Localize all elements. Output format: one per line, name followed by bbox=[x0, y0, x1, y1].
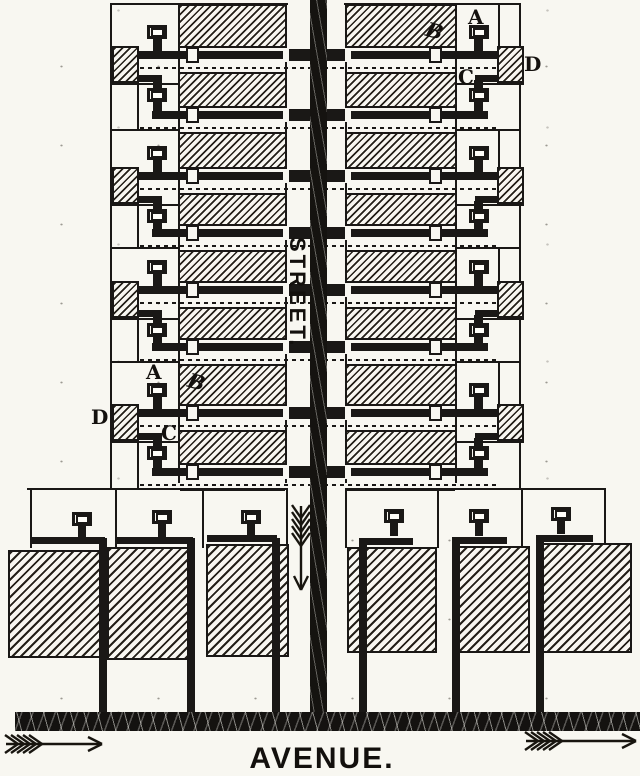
valve-box bbox=[147, 88, 167, 102]
lot-divider-line bbox=[137, 204, 139, 247]
callout-label-d: D bbox=[524, 54, 541, 74]
callout-label-d: D bbox=[91, 407, 108, 427]
valve-box-lid bbox=[151, 263, 164, 272]
wall-sleeve bbox=[186, 47, 199, 63]
curb-stop-riser bbox=[247, 523, 255, 537]
lot-divider-line bbox=[112, 318, 178, 320]
curb-stop-riser bbox=[78, 525, 86, 539]
curb-stop-riser bbox=[153, 274, 162, 287]
valve-box bbox=[147, 25, 167, 39]
valve-box bbox=[147, 209, 167, 223]
curb-stop-riser bbox=[153, 102, 162, 111]
valve-box-lid bbox=[151, 28, 164, 37]
street-wall-gap bbox=[345, 48, 351, 62]
curb-stop-riser bbox=[153, 460, 162, 468]
curb-stop-riser bbox=[475, 522, 483, 536]
valve-box-lid bbox=[473, 512, 486, 521]
avenue-building bbox=[537, 543, 632, 653]
band-top-line bbox=[344, 3, 521, 5]
wall-sleeve bbox=[429, 107, 442, 123]
street-wall-gap bbox=[345, 108, 351, 122]
lot-divider-line bbox=[498, 129, 500, 167]
curb-stop-riser bbox=[474, 39, 483, 52]
junction-block bbox=[112, 167, 139, 204]
wall-sleeve bbox=[429, 282, 442, 298]
valve-box-lid bbox=[151, 91, 164, 100]
wall-sleeve bbox=[186, 405, 199, 421]
curb-stop-riser bbox=[474, 337, 483, 343]
wall-sleeve bbox=[429, 168, 442, 184]
service-header-pipe bbox=[452, 537, 507, 544]
service-header-pipe bbox=[207, 535, 277, 542]
valve-box bbox=[469, 323, 489, 337]
valve-box-lid bbox=[473, 149, 486, 158]
valve-box bbox=[147, 383, 167, 397]
valve-box bbox=[469, 88, 489, 102]
valve-box-lid bbox=[473, 212, 486, 221]
street-wall-gap bbox=[283, 406, 289, 420]
street-wall-gap bbox=[345, 465, 351, 479]
avenue-service-pipe bbox=[536, 538, 544, 716]
valve-box bbox=[241, 510, 261, 524]
avenue-lot-divider-line bbox=[202, 488, 204, 548]
avenue-building bbox=[454, 546, 530, 653]
lot-divider-line bbox=[112, 204, 178, 206]
street-wall-gap bbox=[283, 48, 289, 62]
curb-stop-riser bbox=[153, 223, 162, 229]
wall-sleeve bbox=[186, 168, 199, 184]
avenue-building bbox=[107, 547, 193, 660]
lot-divider-line bbox=[111, 361, 178, 363]
service-header-pipe bbox=[116, 537, 193, 544]
avenue-lot-divider-line bbox=[521, 488, 523, 548]
curb-stop-riser bbox=[474, 223, 483, 229]
valve-box-lid bbox=[473, 91, 486, 100]
valve-box bbox=[469, 209, 489, 223]
lot-divider-line bbox=[498, 247, 500, 281]
valve-box bbox=[72, 512, 92, 526]
valve-box bbox=[469, 509, 489, 523]
curb-stop-riser bbox=[474, 160, 483, 173]
lot-divider-line bbox=[456, 441, 524, 443]
valve-box bbox=[147, 323, 167, 337]
curb-stop-riser bbox=[153, 337, 162, 343]
avenue-service-pipe bbox=[99, 538, 107, 716]
valve-box-lid bbox=[245, 513, 258, 522]
junction-block bbox=[497, 46, 524, 83]
wall-sleeve bbox=[186, 339, 199, 355]
lot-divider-line bbox=[498, 361, 500, 404]
lot-divider-line bbox=[137, 441, 139, 488]
street-wall-gap bbox=[283, 465, 289, 479]
valve-box bbox=[469, 383, 489, 397]
street-wall-gap bbox=[345, 226, 351, 240]
valve-box bbox=[147, 146, 167, 160]
avenue-lot-divider-line bbox=[437, 488, 439, 548]
wall-sleeve bbox=[429, 47, 442, 63]
lot-divider-line bbox=[498, 4, 500, 46]
lot-divider-line bbox=[112, 83, 178, 85]
band-top-line bbox=[110, 3, 288, 5]
valve-box bbox=[469, 446, 489, 460]
curb-stop-riser bbox=[474, 274, 483, 287]
valve-box bbox=[152, 510, 172, 524]
valve-box-lid bbox=[473, 263, 486, 272]
street-wall-gap bbox=[283, 108, 289, 122]
avenue-lot-top-line bbox=[27, 488, 287, 490]
valve-box bbox=[469, 146, 489, 160]
lot-divider-line bbox=[457, 361, 519, 363]
valve-box-lid bbox=[156, 513, 169, 522]
valve-box-lid bbox=[151, 386, 164, 395]
avenue-service-pipe bbox=[452, 538, 460, 716]
curb-stop-riser bbox=[474, 460, 483, 468]
callout-label-c: C bbox=[458, 67, 474, 87]
street-wall-gap bbox=[283, 169, 289, 183]
avenue-name-label: AVENUE. bbox=[233, 742, 411, 774]
valve-box-lid bbox=[473, 326, 486, 335]
valve-box-lid bbox=[388, 512, 401, 521]
curb-stop-riser bbox=[390, 522, 398, 536]
wall-sleeve bbox=[429, 464, 442, 480]
curb-stop-riser bbox=[557, 520, 565, 534]
junction-block bbox=[497, 281, 524, 318]
wall-sleeve bbox=[429, 405, 442, 421]
callout-label-a: A bbox=[468, 7, 484, 27]
curb-stop-riser bbox=[153, 397, 162, 410]
street-wall-gap bbox=[345, 406, 351, 420]
avenue-service-pipe bbox=[272, 538, 280, 716]
street-main bbox=[310, 0, 327, 714]
wall-sleeve bbox=[186, 225, 199, 241]
junction-block bbox=[112, 404, 139, 441]
avenue-lot-divider-line bbox=[345, 488, 347, 548]
service-header-pipe bbox=[536, 535, 593, 542]
street-wall-gap bbox=[345, 169, 351, 183]
lot-divider-line bbox=[457, 247, 519, 249]
curb-stop-riser bbox=[474, 397, 483, 410]
avenue-lot-top-line bbox=[345, 488, 605, 490]
valve-box bbox=[469, 260, 489, 274]
junction-block bbox=[112, 46, 139, 83]
valve-box bbox=[384, 509, 404, 523]
curb-stop-riser bbox=[474, 102, 483, 111]
avenue-flow-arrow-left bbox=[2, 731, 106, 757]
wall-sleeve bbox=[429, 339, 442, 355]
valve-box-lid bbox=[151, 326, 164, 335]
street-wall-gap bbox=[345, 340, 351, 354]
valve-box bbox=[147, 446, 167, 460]
street-wall-gap bbox=[345, 283, 351, 297]
lot-divider-line bbox=[456, 318, 524, 320]
callout-label-c: C bbox=[161, 423, 177, 443]
valve-box-lid bbox=[151, 212, 164, 221]
street-name-label: STREET. bbox=[284, 237, 310, 361]
valve-box-lid bbox=[151, 149, 164, 158]
valve-box bbox=[147, 260, 167, 274]
curb-stop-riser bbox=[153, 160, 162, 173]
lot-divider-line bbox=[457, 129, 519, 131]
lot-divider-line bbox=[137, 83, 139, 129]
street-flow-arrow bbox=[288, 500, 314, 596]
junction-block bbox=[112, 281, 139, 318]
wall-sleeve bbox=[186, 282, 199, 298]
curb-stop-riser bbox=[158, 523, 166, 537]
valve-box-lid bbox=[151, 449, 164, 458]
avenue-service-pipe bbox=[359, 538, 367, 716]
valve-box-lid bbox=[555, 510, 568, 519]
junction-block bbox=[497, 404, 524, 441]
lot-divider-line bbox=[111, 129, 178, 131]
service-header-pipe bbox=[32, 537, 105, 544]
avenue-flow-arrow-right bbox=[522, 728, 640, 756]
lot-divider-line bbox=[111, 247, 178, 249]
avenue-building bbox=[8, 550, 105, 658]
service-header-pipe bbox=[359, 538, 413, 545]
valve-box bbox=[551, 507, 571, 521]
avenue-lot-divider-line bbox=[604, 488, 606, 548]
lot-divider-line bbox=[137, 318, 139, 361]
figure-canvas: STREET. AVENUE. ABCDABDC bbox=[0, 0, 640, 776]
junction-block bbox=[497, 167, 524, 204]
wall-sleeve bbox=[186, 107, 199, 123]
lot-divider-line bbox=[456, 204, 524, 206]
valve-box-lid bbox=[76, 515, 89, 524]
avenue-service-pipe bbox=[187, 538, 195, 716]
valve-box-lid bbox=[473, 386, 486, 395]
wall-sleeve bbox=[186, 464, 199, 480]
callout-label-a: A bbox=[146, 362, 162, 382]
curb-stop-riser bbox=[153, 39, 162, 52]
wall-sleeve bbox=[429, 225, 442, 241]
valve-box-lid bbox=[473, 449, 486, 458]
